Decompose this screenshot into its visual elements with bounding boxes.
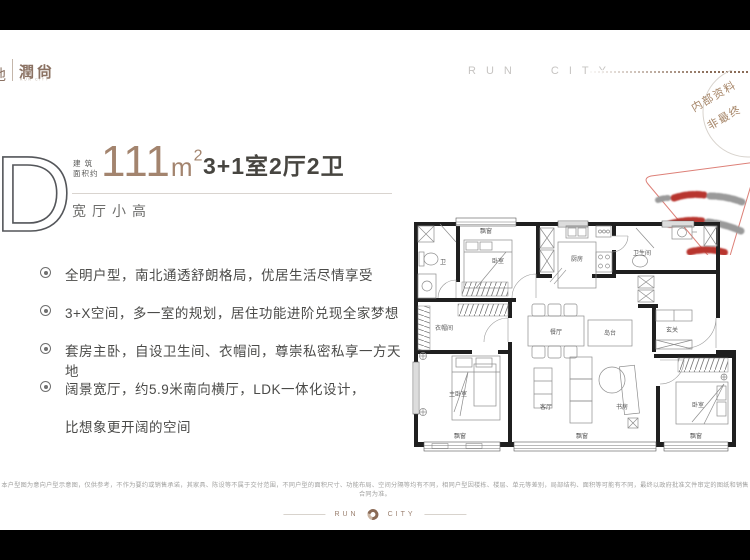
footer: RUN CITY	[0, 509, 750, 529]
brand-ring-icon	[365, 507, 380, 522]
area-prefix: 建 筑 面积约	[73, 159, 99, 179]
area-unit: m	[171, 152, 194, 182]
feature-text: 阔景宽厅，约5.9米南向横厅，LDK一体化设计，	[65, 378, 365, 398]
room-label-dining: 餐厅	[550, 328, 562, 336]
feature-item-continuation: 比想象更开阔的空间	[40, 416, 410, 454]
feature-list: 全明户型，南北通透舒朗格局，优居生活尽情享受 3+X空间，多一室的规划，居住功能…	[40, 264, 410, 454]
footer-word-left: RUN	[334, 511, 358, 518]
developer-logo-partial: 地	[0, 64, 6, 85]
bullet-icon	[40, 381, 51, 392]
logo-divider	[12, 59, 13, 81]
stamp-text-2: 非最终	[705, 102, 744, 133]
room-label-cloakroom: 衣帽间	[435, 324, 453, 332]
feature-text: 全明户型，南北通透舒朗格局，优居生活尽情享受	[65, 264, 373, 284]
area-number: 111	[101, 137, 171, 186]
feature-item: 阔景宽厅，约5.9米南向横厅，LDK一体化设计，	[40, 378, 410, 416]
unit-letter: D	[0, 142, 69, 247]
footer-line-left	[283, 514, 325, 515]
room-label-bay-living: 飘窗	[576, 432, 588, 440]
room-label-living: 客厅	[540, 403, 552, 411]
floorplan: 飘窗 卧室 卫 厨房 卫生间 衣帽间 餐厅 岛台 玄关 主卧室 客厅 书房 卧室…	[410, 216, 740, 456]
room-label-bay-right: 飘窗	[690, 432, 702, 440]
room-label-bath-right: 卫生间	[633, 249, 651, 257]
room-label-bedroom-top: 卧室	[492, 257, 504, 265]
room-label-bay-top: 飘窗	[480, 227, 492, 235]
feature-item: 套房主卧，自设卫生间、衣帽间，尊崇私密私享一方天地	[40, 340, 410, 378]
floorplan-windows	[413, 218, 728, 451]
room-label-bay-master: 飘窗	[454, 432, 466, 440]
room-label-island: 岛台	[604, 329, 616, 337]
page-canvas: 地 潤尙 RUN CITY RUN CITY 内部资料 非最终	[0, 30, 750, 530]
area-prefix-line2: 面积约	[73, 169, 99, 179]
bullet-icon	[40, 267, 51, 278]
letterbox-bottom	[0, 530, 750, 560]
headline-divider	[72, 193, 392, 194]
room-label-kitchen: 厨房	[571, 255, 583, 263]
room-label-study: 书房	[616, 403, 628, 411]
bullet-icon	[40, 343, 51, 354]
wardrobe-hatching	[418, 282, 728, 372]
letterbox-top	[0, 0, 750, 30]
feature-text: 套房主卧，自设卫生间、衣帽间，尊崇私密私享一方天地	[65, 340, 410, 380]
area-unit-sup: 2	[194, 147, 204, 164]
footer-line-right	[425, 514, 467, 515]
floorplan-window-lines	[415, 222, 728, 449]
floorplan-walls	[414, 222, 736, 447]
room-configuration: 3+1室2厅2卫	[203, 147, 345, 181]
room-labels: 飘窗 卧室 卫 厨房 卫生间 衣帽间 餐厅 岛台 玄关 主卧室 客厅 书房 卧室…	[435, 227, 704, 440]
room-label-bedroom-right: 卧室	[692, 401, 704, 409]
poster-frame: 地 潤尙 RUN CITY RUN CITY 内部资料 非最终	[0, 0, 750, 560]
feature-text: 比想象更开阔的空间	[65, 416, 191, 436]
bullet-icon	[40, 305, 51, 316]
area-value: 111m2	[101, 137, 203, 187]
room-label-master: 主卧室	[449, 390, 467, 398]
disclaimer-text: 本户型图为意向户型示意图，仅供参考，不作为要约或销售承诺，其家具、陈设等不属于交…	[0, 480, 750, 498]
room-label-entry: 玄关	[666, 326, 678, 334]
feature-item: 3+X空间，多一室的规划，居住功能进阶兑现全家梦想	[40, 302, 410, 340]
footer-word-right: CITY	[388, 511, 416, 518]
area-prefix-line1: 建 筑	[73, 159, 99, 169]
feature-item: 全明户型，南北通透舒朗格局，优居生活尽情享受	[40, 264, 410, 302]
room-label-bath-left: 卫	[440, 259, 446, 266]
unit-letter-glyph: D	[0, 142, 69, 247]
unit-tagline: 宽厅小高	[72, 201, 152, 221]
feature-text: 3+X空间，多一室的规划，居住功能进阶兑现全家梦想	[65, 302, 399, 322]
brand-logo-subtext: RUN CITY	[20, 77, 50, 81]
